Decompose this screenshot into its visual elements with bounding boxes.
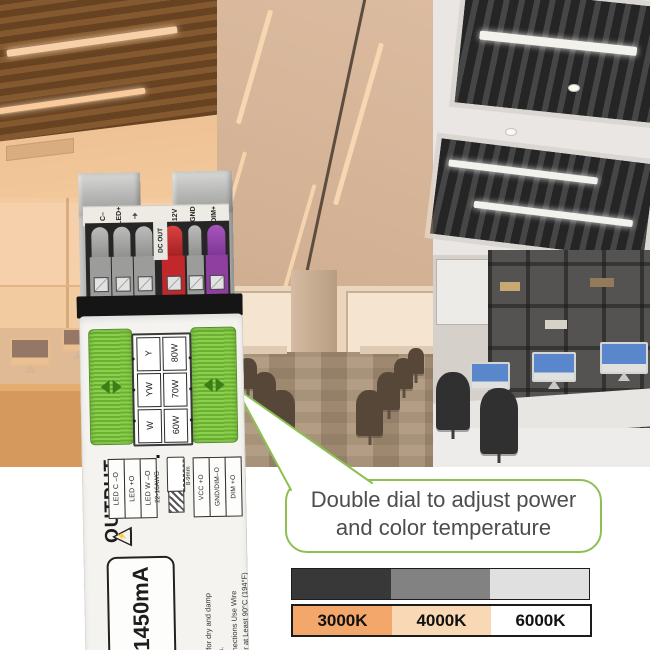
desk-right-front	[433, 428, 650, 467]
left-arrow-icon	[204, 378, 213, 392]
roller-shade-right	[436, 259, 492, 325]
desktop-monitor	[532, 352, 576, 382]
right-arrow-icon	[216, 378, 225, 392]
connector-body	[112, 256, 134, 296]
linear-light	[473, 201, 633, 227]
ceiling-coffer	[449, 0, 650, 129]
power-option-column: 80W 70W 60W	[162, 336, 188, 442]
left-arrow-icon	[101, 380, 110, 394]
connector-lever	[113, 227, 131, 259]
downlight	[505, 128, 517, 136]
ct-option-cell: Y	[136, 336, 161, 370]
gray-segment	[490, 569, 589, 599]
office-chair	[480, 388, 518, 454]
dial-position-dot	[132, 358, 135, 361]
right-arrow-icon	[113, 380, 122, 394]
connector-body	[187, 255, 205, 295]
desktop-monitor	[470, 362, 510, 390]
callout-line-1: Double dial to adjust power	[285, 486, 602, 514]
power-option-cell: 60W	[164, 408, 189, 442]
terminal-connector-gray	[186, 225, 204, 295]
dial-position-dots	[131, 344, 136, 436]
output-terminal-box: DIM +O	[225, 456, 243, 516]
dial-arrow-marker	[204, 378, 225, 392]
ct-option-cell: YW	[137, 372, 162, 406]
device-body: Y YW W 80W 70W 60W OUTPUT LED C –O LED +…	[79, 313, 250, 650]
connector-clamp	[210, 275, 225, 290]
wire-gauge-label: 22-16AWG	[152, 458, 163, 516]
connector-clamp	[137, 276, 152, 291]
connector-body	[162, 255, 186, 295]
dial-arrow-marker	[101, 380, 122, 394]
led-driver: C– LED+ ⏚ 12V GND DIM+ DC OUT	[74, 166, 250, 650]
ct-option-column: Y YW W	[136, 336, 162, 442]
books	[590, 278, 614, 287]
gray-scale-bar	[291, 568, 590, 600]
linear-light	[448, 159, 598, 184]
power-option-cell: 80W	[162, 336, 187, 370]
callout-text: Double dial to adjust power and color te…	[285, 486, 602, 542]
temp-segment-6000k: 6000K	[491, 606, 590, 635]
connector-clamp	[115, 277, 130, 292]
dial-position-dot	[132, 388, 135, 391]
connector-lever	[207, 225, 226, 257]
dc-out-label: DC OUT	[153, 220, 168, 260]
callout-line-2: and color temperature	[285, 514, 602, 542]
connector-body	[134, 256, 156, 296]
power-ct-dial-left	[88, 329, 134, 446]
ceiling-middle	[217, 0, 433, 292]
books	[500, 282, 520, 291]
connector-lever	[91, 227, 109, 259]
downlight	[568, 84, 580, 92]
ct-option-cell: W	[138, 408, 163, 442]
connector-clamp	[166, 276, 181, 291]
temp-label: 4000K	[416, 611, 466, 631]
linear-light	[479, 31, 637, 56]
color-temp-bar: 3000K 4000K 6000K	[291, 604, 592, 637]
dial-position-dot	[189, 357, 192, 360]
connector-body	[90, 257, 112, 297]
terminal-connector-gray	[89, 227, 111, 297]
desktop-monitor	[600, 342, 648, 374]
connector-lever	[135, 226, 153, 258]
connector-lever	[188, 225, 202, 257]
temp-label: 3000K	[317, 611, 367, 631]
dial-position-dot	[133, 419, 136, 422]
wire-strip-hatch	[168, 491, 184, 513]
dial-position-dot	[190, 418, 193, 421]
terminal-connector-purple	[205, 225, 228, 295]
desktop-monitor	[10, 338, 50, 366]
office-chair	[268, 390, 295, 436]
connector-body	[206, 255, 229, 295]
office-chair	[356, 390, 383, 436]
fine-print-text: Rated for at Least 90°C (194°F)	[238, 553, 249, 650]
terminal-connector-gray	[133, 226, 155, 296]
current-rating-badge: 1450mA	[106, 556, 176, 650]
power-ct-dial-right	[190, 327, 238, 444]
dial-setting-table: Y YW W 80W 70W 60W	[131, 332, 193, 446]
power-option-cell: 70W	[163, 372, 188, 406]
gray-segment	[391, 569, 490, 599]
books	[545, 320, 567, 329]
connector-clamp	[188, 275, 203, 290]
connector-clamp	[93, 277, 108, 292]
temp-label: 6000K	[515, 611, 565, 631]
product-marketing-image: Double dial to adjust power and color te…	[0, 0, 650, 650]
dial-position-dot	[189, 387, 192, 390]
strip-length-label: 8-9mm	[183, 459, 194, 491]
terminal-connector-gray	[111, 226, 133, 296]
temp-segment-3000k: 3000K	[293, 606, 392, 635]
office-chair	[436, 372, 470, 430]
fine-print-text: locations.	[213, 554, 226, 650]
gray-segment	[292, 569, 391, 599]
temp-segment-4000k: 4000K	[392, 606, 491, 635]
